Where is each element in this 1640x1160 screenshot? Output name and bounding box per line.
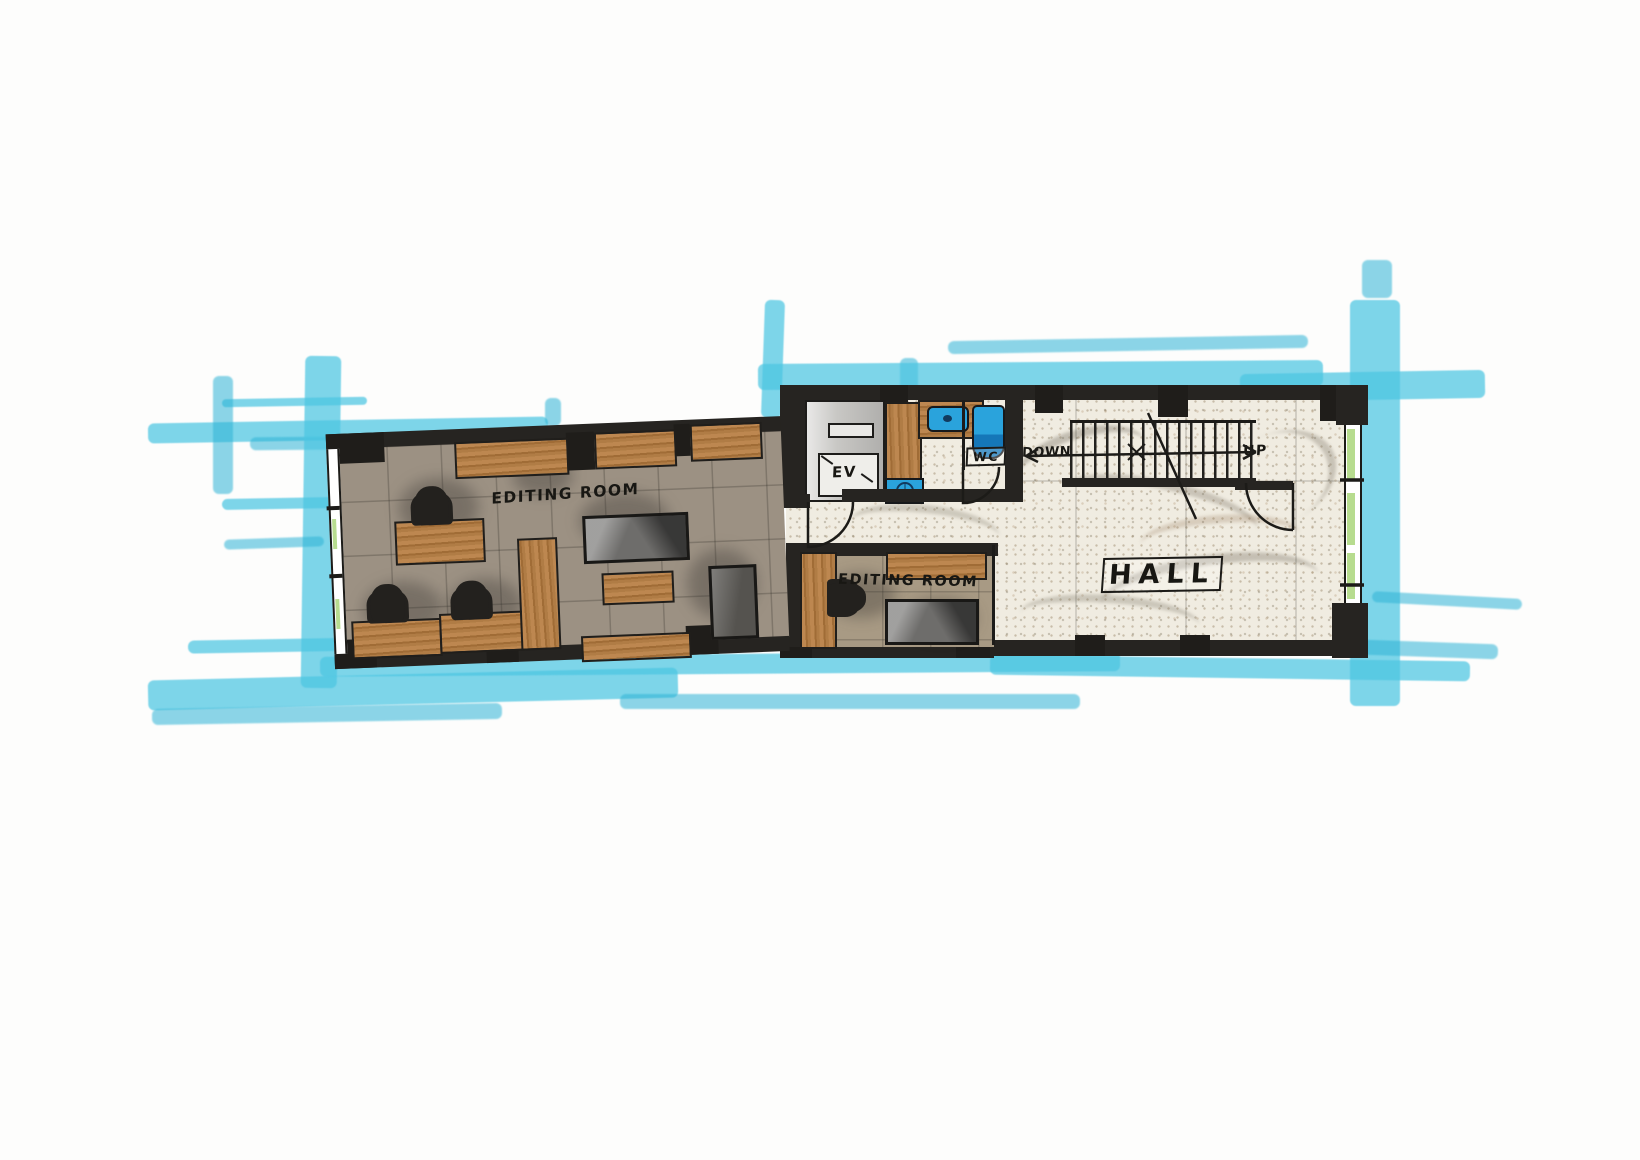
- wall-desk: [581, 632, 692, 662]
- room-wall-right: [992, 545, 995, 645]
- stairs-up-label: UP: [1243, 443, 1268, 460]
- editing-room-2: EDITING ROOM: [786, 543, 998, 647]
- window-glass-green: [1347, 553, 1355, 599]
- marker-stroke: [948, 335, 1308, 354]
- side-table: [601, 571, 674, 606]
- column: [1075, 635, 1105, 656]
- office-chair: [414, 485, 449, 524]
- marker-stroke: [222, 397, 367, 408]
- wall-desk: [690, 422, 763, 462]
- editing-room-2-label: EDITING ROOM: [837, 572, 978, 590]
- desk: [394, 518, 486, 566]
- marker-stroke: [545, 398, 561, 426]
- column: [1180, 635, 1210, 656]
- wall-desk: [454, 438, 569, 480]
- landing-wall: [1235, 481, 1293, 490]
- exterior-wall-bottom: [985, 640, 1368, 656]
- lobby-wall: [842, 489, 1008, 502]
- column: [1035, 385, 1063, 413]
- editing-room-1: EDITING ROOM: [326, 416, 790, 669]
- office-chair: [370, 583, 405, 622]
- window-glass-green: [1347, 429, 1355, 481]
- marker-stroke: [222, 497, 334, 510]
- stairs: [1070, 420, 1256, 486]
- floor-plan-sketch: EV WC DOWN UP HALL: [0, 0, 1640, 1160]
- elevator-call-panel: [828, 423, 874, 438]
- marker-stroke: [620, 694, 1080, 709]
- cabinet: [708, 564, 759, 640]
- corner-wall: [1336, 385, 1368, 425]
- marker-stroke: [213, 376, 233, 494]
- column: [566, 432, 596, 471]
- hall-label: HALL: [1101, 556, 1223, 593]
- pencil-grid-line: [1295, 400, 1297, 642]
- stairs-down-label: DOWN: [1022, 444, 1072, 460]
- wc-pier-wall: [1005, 390, 1023, 502]
- basin-drain: [943, 415, 952, 422]
- right-wing: EV WC DOWN UP HALL: [780, 385, 1368, 658]
- elevator-label: EV: [832, 463, 858, 482]
- wood-cabinet: [885, 402, 922, 484]
- elevator-pier-wall: [780, 385, 806, 501]
- tall-wood-desk: [517, 537, 561, 651]
- window-mullion: [329, 574, 342, 579]
- office-chair: [454, 580, 489, 619]
- wc-room-wall: [962, 400, 965, 470]
- stair-wall: [1062, 478, 1256, 487]
- exterior-wall-top: [780, 385, 1368, 400]
- window-mullion: [327, 506, 340, 511]
- marker-stroke: [1362, 260, 1392, 298]
- wc-label: WC: [966, 446, 1007, 466]
- glass-table: [582, 512, 690, 564]
- column: [1158, 385, 1188, 417]
- window-glass-green: [1347, 493, 1355, 545]
- corner-wall: [1332, 603, 1368, 658]
- lobby-wall: [780, 494, 810, 508]
- wall-desk: [594, 429, 677, 469]
- worktable: [885, 599, 979, 645]
- desk: [351, 618, 442, 660]
